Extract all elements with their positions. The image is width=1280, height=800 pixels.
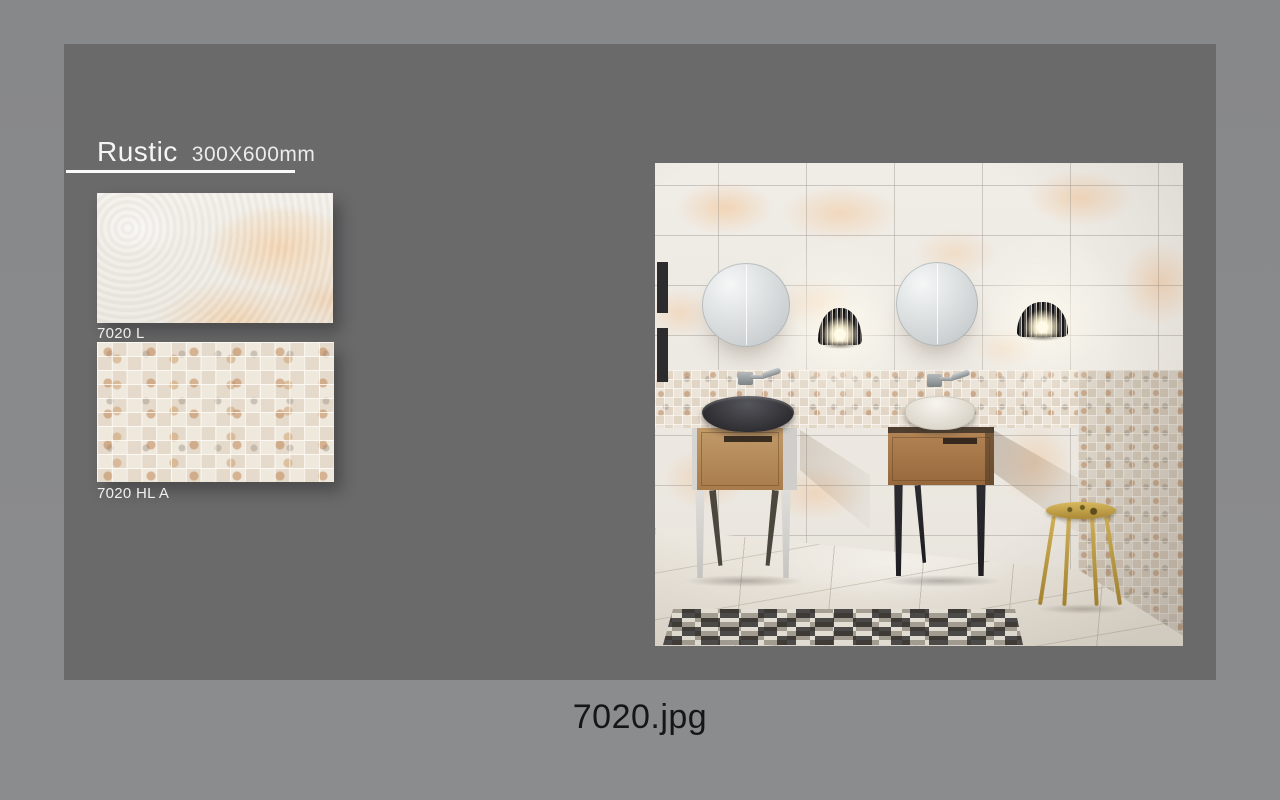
vanity-shadow — [881, 575, 1001, 587]
filename-caption: 7020.jpg — [0, 698, 1280, 737]
tile-sample-plain — [97, 193, 333, 323]
wall-faucet-left — [738, 370, 782, 389]
bathroom-render — [655, 163, 1183, 646]
vanity-left — [688, 393, 803, 585]
stool-leg — [1038, 516, 1056, 606]
stool-seat — [1046, 502, 1116, 519]
round-mirror-left — [702, 263, 790, 347]
vanity-right — [885, 393, 997, 585]
title-underline — [66, 170, 295, 173]
checkered-rug — [663, 609, 1023, 645]
gold-stool — [1040, 498, 1125, 613]
series-header: Rustic 300X600mm — [97, 136, 315, 168]
vanity-front-leg — [893, 485, 904, 576]
vanity-drawer — [888, 433, 994, 485]
wall-faucet-right — [927, 372, 971, 391]
vanity-back-leg — [914, 485, 929, 563]
stool-leg — [1104, 516, 1122, 606]
drawer-handle-slot — [724, 436, 772, 442]
stool-leg — [1090, 516, 1099, 606]
vanity-front-leg — [694, 490, 706, 578]
stool-leg — [1062, 516, 1071, 606]
tile-sample-mosaic — [97, 342, 334, 482]
catalog-page: Rustic 300X600mm 7020 L 7020 HL A — [64, 44, 1216, 680]
drawer-handle-slot — [943, 438, 977, 444]
door-edge-upper — [657, 262, 668, 313]
vanity-front-leg — [975, 485, 987, 576]
round-mirror-right — [896, 262, 978, 346]
vanity-drawer — [692, 428, 797, 490]
vanity-back-leg — [708, 490, 725, 567]
vanity-back-leg — [763, 490, 780, 567]
series-title: Rustic — [97, 136, 178, 168]
tile-sample-mosaic-code: 7020 HL A — [97, 485, 337, 503]
stool-shadow — [1038, 604, 1128, 614]
desktop-background: Rustic 300X600mm 7020 L 7020 HL A — [0, 0, 1280, 800]
tile-sample-plain-code: 7020 L — [97, 325, 337, 343]
vanity-front-leg — [780, 490, 792, 578]
series-size-label: 300X600mm — [192, 143, 316, 167]
basin-bowl-dark — [702, 396, 794, 432]
door-edge-lower — [657, 328, 668, 382]
basin-bowl-light — [905, 396, 975, 430]
